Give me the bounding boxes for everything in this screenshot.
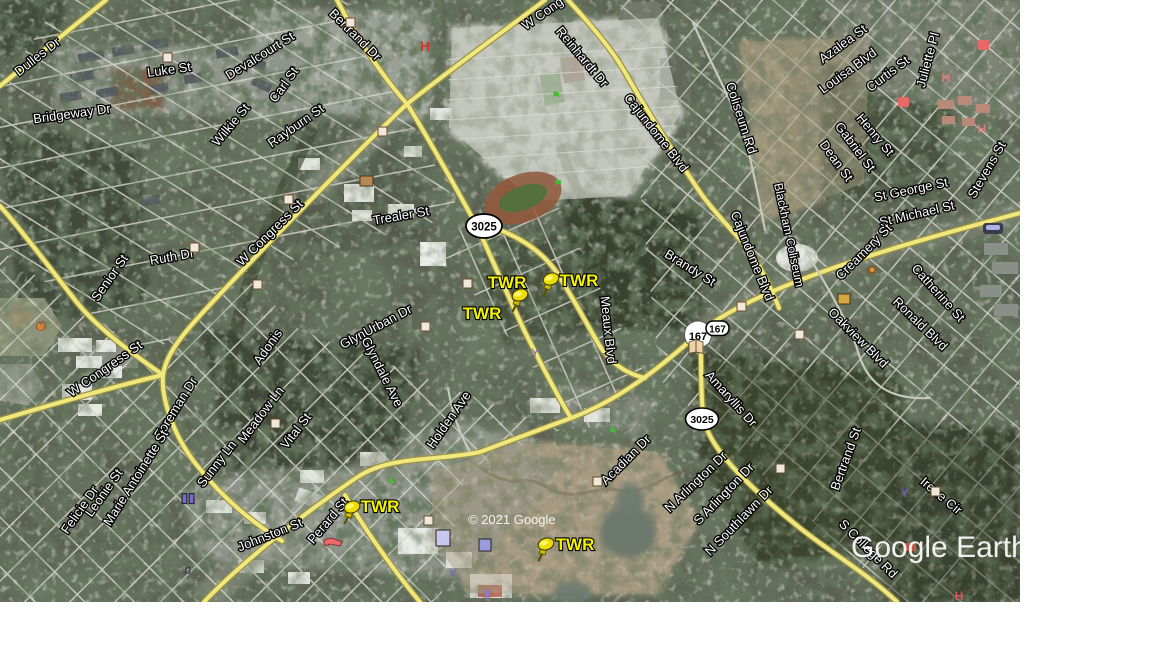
svg-text:⚑: ⚑ bbox=[553, 178, 563, 190]
svg-text:Y: Y bbox=[531, 346, 539, 360]
svg-text:♫: ♫ bbox=[182, 562, 192, 577]
svg-text:TWR: TWR bbox=[560, 271, 599, 290]
svg-text:▲: ▲ bbox=[386, 474, 397, 486]
svg-text:▮▮: ▮▮ bbox=[181, 490, 195, 505]
svg-text:3025: 3025 bbox=[690, 414, 714, 426]
svg-text:TWR: TWR bbox=[556, 535, 595, 554]
svg-text:H: H bbox=[420, 38, 430, 54]
svg-text:Google Earth: Google Earth bbox=[851, 531, 1020, 564]
svg-text:TWR: TWR bbox=[361, 497, 400, 516]
svg-text:♜: ♜ bbox=[482, 589, 492, 601]
svg-text:167: 167 bbox=[709, 325, 726, 336]
svg-text:© 2021 Google: © 2021 Google bbox=[468, 512, 556, 527]
svg-text:H: H bbox=[955, 589, 964, 602]
svg-text:✷: ✷ bbox=[866, 262, 878, 278]
svg-text:TWR: TWR bbox=[463, 304, 502, 323]
svg-text:H: H bbox=[978, 122, 987, 136]
svg-text:H: H bbox=[942, 71, 951, 85]
svg-text:⚑: ⚑ bbox=[551, 90, 561, 102]
svg-text:3025: 3025 bbox=[471, 222, 497, 234]
svg-text:Y: Y bbox=[901, 486, 909, 500]
svg-text:▲: ▲ bbox=[608, 423, 619, 435]
svg-text:Y: Y bbox=[449, 566, 457, 580]
